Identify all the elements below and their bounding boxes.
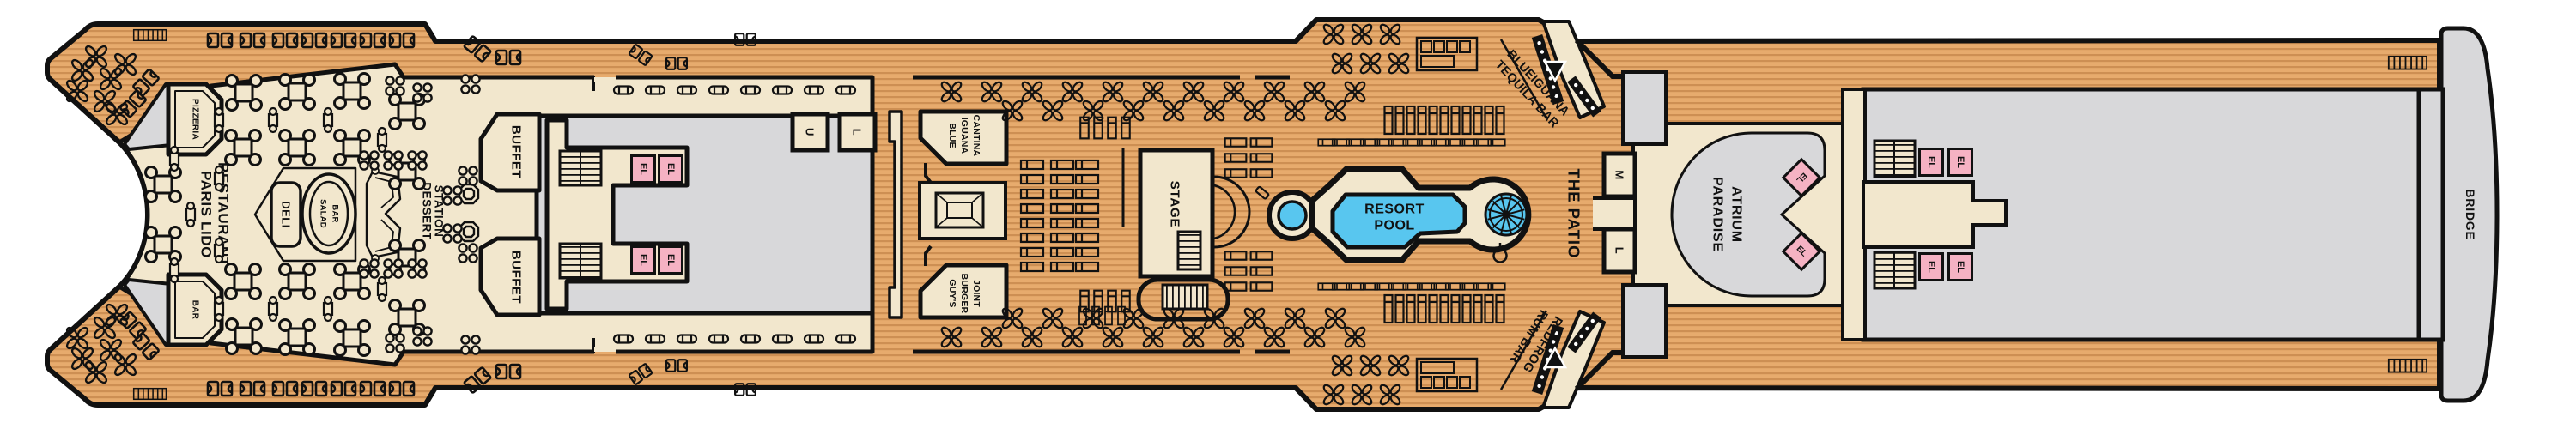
svg-text:PIZZERIA: PIZZERIA xyxy=(191,99,200,140)
svg-text:BAR: BAR xyxy=(191,300,200,320)
svg-text:POOL: POOL xyxy=(1374,219,1414,233)
svg-text:JOINT: JOINT xyxy=(971,280,981,307)
svg-text:ATRIUM: ATRIUM xyxy=(1729,186,1744,243)
svg-text:CANTINA: CANTINA xyxy=(971,115,981,157)
svg-text:SALAD: SALAD xyxy=(319,199,328,228)
svg-text:BURGER: BURGER xyxy=(959,274,969,314)
svg-text:BLUE: BLUE xyxy=(947,123,957,148)
svg-text:BUFFET: BUFFET xyxy=(509,125,524,178)
svg-text:L: L xyxy=(1613,247,1626,254)
svg-text:DESSERT: DESSERT xyxy=(421,182,434,240)
svg-text:STAGE: STAGE xyxy=(1168,181,1182,228)
svg-text:PARADISE: PARADISE xyxy=(1710,177,1725,252)
svg-text:BUFFET: BUFFET xyxy=(509,251,524,304)
svg-text:L: L xyxy=(851,129,864,136)
svg-text:IGUANA: IGUANA xyxy=(959,118,969,154)
svg-text:M: M xyxy=(1613,170,1626,179)
svg-text:U: U xyxy=(804,128,817,136)
svg-text:BRIDGE: BRIDGE xyxy=(2464,189,2477,239)
svg-text:BAR: BAR xyxy=(331,204,340,222)
svg-text:THE PATIO: THE PATIO xyxy=(1565,169,1583,259)
svg-text:GUY'S: GUY'S xyxy=(947,279,957,307)
svg-text:DELI: DELI xyxy=(280,201,293,228)
svg-text:PARIS LIDO: PARIS LIDO xyxy=(198,171,215,258)
svg-text:RESORT: RESORT xyxy=(1364,202,1425,217)
